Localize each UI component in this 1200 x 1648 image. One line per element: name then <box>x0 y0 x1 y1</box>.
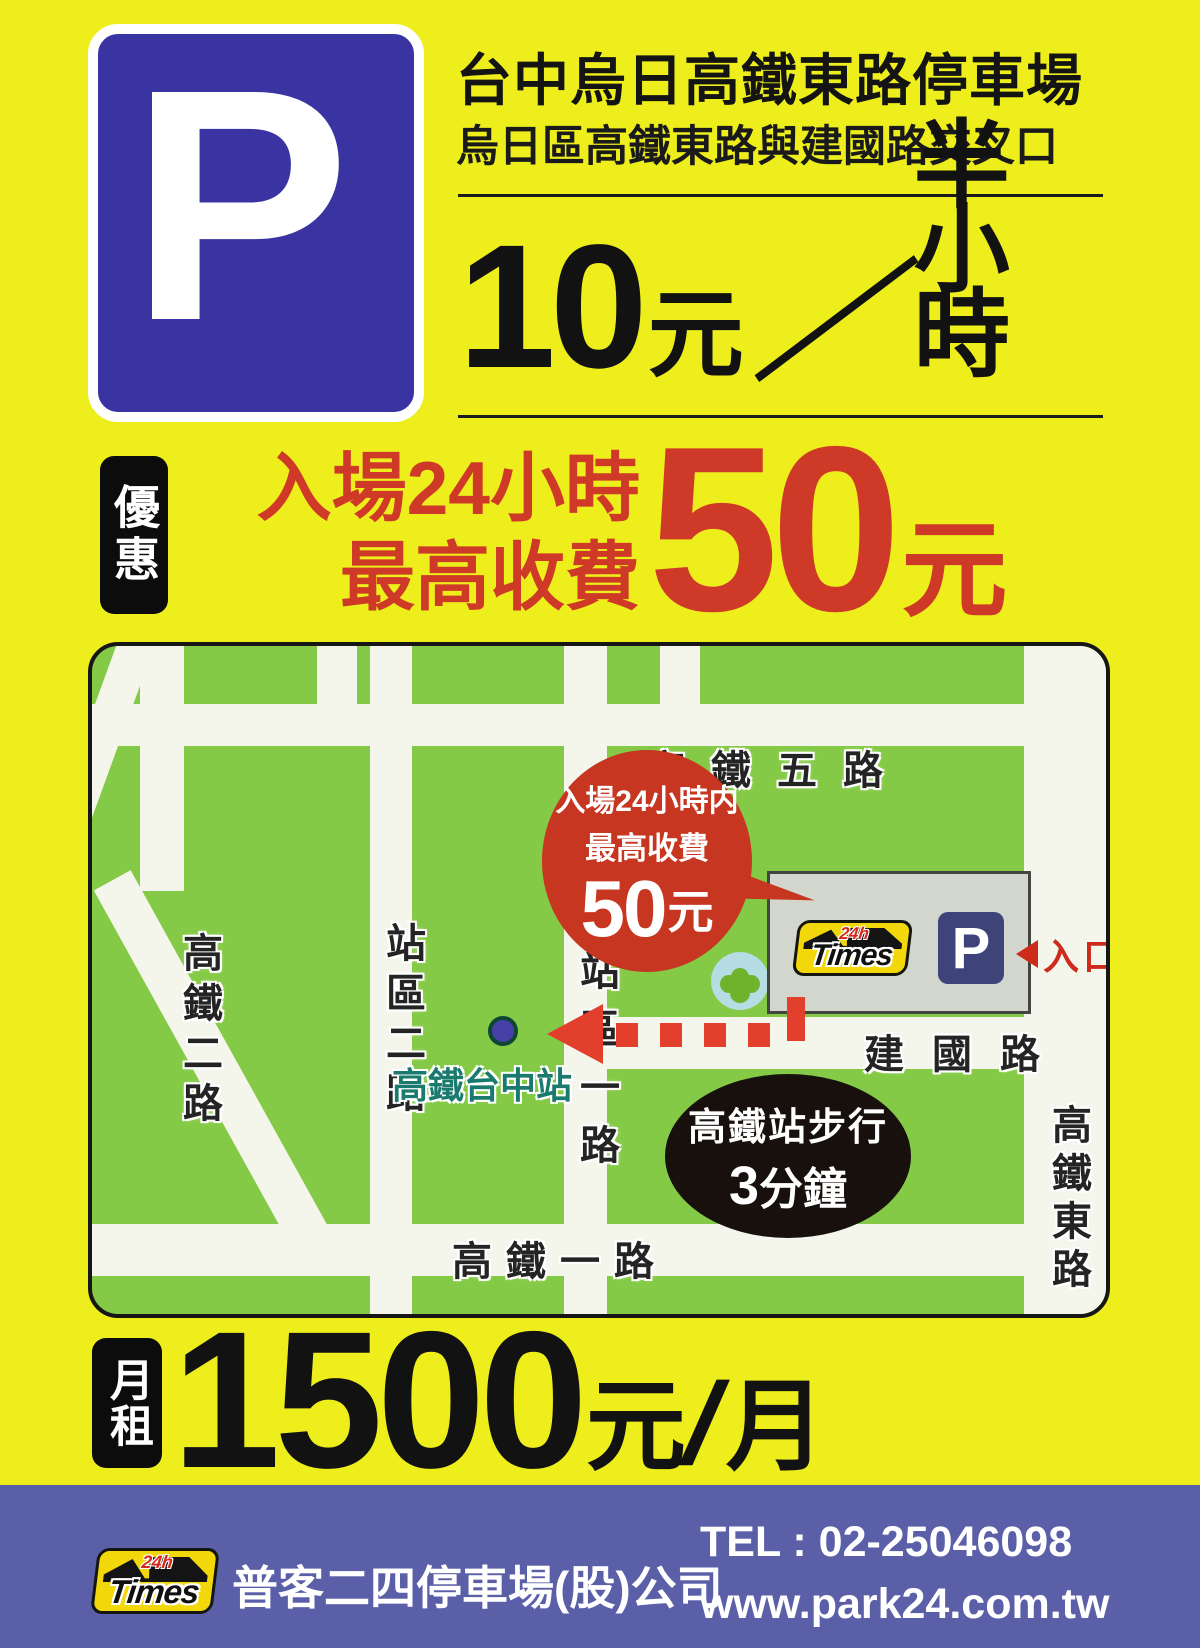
walk-minutes: 3 <box>729 1155 759 1217</box>
monthly-rate: 1500 元 / 月 <box>172 1330 826 1470</box>
entrance-arrow-icon <box>1016 940 1038 968</box>
entrance-marker: 入口 <box>1016 928 1110 980</box>
promo-price: 50 元 <box>648 430 1007 627</box>
hourly-rate: 10 元 ／ 半小時 <box>458 226 1108 378</box>
rate-separator: ／ <box>752 268 918 379</box>
road-left-vertical <box>140 646 184 891</box>
phone-number: TEL : 02-25046098 <box>700 1518 1072 1567</box>
bubble-amount: 50 <box>581 872 666 946</box>
parking-sign-logo: P <box>88 24 424 422</box>
footer: 24h Times 普客二四停車場(股)公司 TEL : 02-25046098… <box>0 1485 1200 1648</box>
promo-price-amount: 50 <box>648 430 893 627</box>
walk-route-stub <box>787 997 805 1041</box>
station-label: 高鐵台中站 <box>392 1057 572 1109</box>
road-label-gaotie1: 高鐵一路 <box>452 1229 668 1287</box>
location-map: 高鐵五路 建國路 高鐵一路 高鐵二路 站區二路 站區一路 高鐵東路 入場24小時… <box>88 642 1110 1318</box>
bubble-line2: 最高收費 <box>585 823 709 868</box>
walk-route-dash <box>748 1023 770 1047</box>
tree-icon <box>731 968 749 986</box>
road-label-gaotie-east: 高鐵東路 <box>1039 1104 1097 1296</box>
bubble-line1: 入場24小時内 <box>555 776 738 820</box>
monthly-badge: 月租 <box>92 1338 162 1468</box>
monthly-per: 月 <box>726 1386 826 1468</box>
website-url: www.park24.com.tw <box>700 1580 1109 1629</box>
station-dot-icon <box>488 1016 518 1046</box>
parking-sign-letter: P <box>130 40 350 370</box>
parking-flyer: P 台中烏日高鐵東路停車場 烏日區高鐵東路與建國路交叉口 10 元 ／ 半小時 … <box>0 0 1200 1648</box>
promo-badge: 優惠 <box>100 456 168 614</box>
walk-minutes-unit: 分鐘 <box>759 1153 847 1217</box>
times-name: Times <box>93 1573 214 1611</box>
page-title: 台中烏日高鐵東路停車場 <box>456 36 1106 117</box>
times-24h-label: 24h <box>140 1552 174 1573</box>
footer-times-logo: 24h Times <box>90 1548 220 1614</box>
promo-line1: 入場24小時 <box>175 444 640 533</box>
parking-p-letter: P <box>952 915 991 982</box>
road-label-zhanqu1: 站區一路 <box>567 950 625 1182</box>
company-name: 普客二四停車場(股)公司 <box>232 1552 723 1618</box>
walk-route-dash <box>660 1023 682 1047</box>
walk-route-dash <box>704 1023 726 1047</box>
rate-per: 半小時 <box>914 125 1108 378</box>
walk-route-arrow-icon <box>547 1004 603 1064</box>
rate-amount: 10 <box>458 237 642 378</box>
monthly-amount: 1500 <box>172 1330 582 1470</box>
promo-price-unit: 元 <box>901 524 1007 619</box>
road-stub-a <box>317 646 357 704</box>
road-label-gaotie2: 高鐵二路 <box>170 932 228 1132</box>
times-logo: 24h Times <box>792 920 914 976</box>
monthly-unit: 元 <box>586 1386 686 1468</box>
rate-unit: 元 <box>648 294 744 378</box>
walk-route-dash <box>616 1023 638 1047</box>
price-bubble: 入場24小時内 最高收費 50 元 <box>542 750 752 972</box>
parking-p-icon: P <box>938 912 1004 984</box>
pond-icon <box>711 952 769 1010</box>
times-name: Times <box>795 939 908 973</box>
road-label-jianguo: 建國路 <box>864 1022 1068 1080</box>
entrance-label: 入口 <box>1043 928 1110 980</box>
walk-line1: 高鐵站步行 <box>688 1096 888 1151</box>
road-stub-b <box>660 646 700 704</box>
bubble-unit: 元 <box>667 876 713 942</box>
walk-time-badge: 高鐵站步行 3 分鐘 <box>665 1074 911 1238</box>
promo-line2: 最高收費 <box>175 533 640 622</box>
promo-text: 入場24小時 最高收費 <box>175 444 640 623</box>
